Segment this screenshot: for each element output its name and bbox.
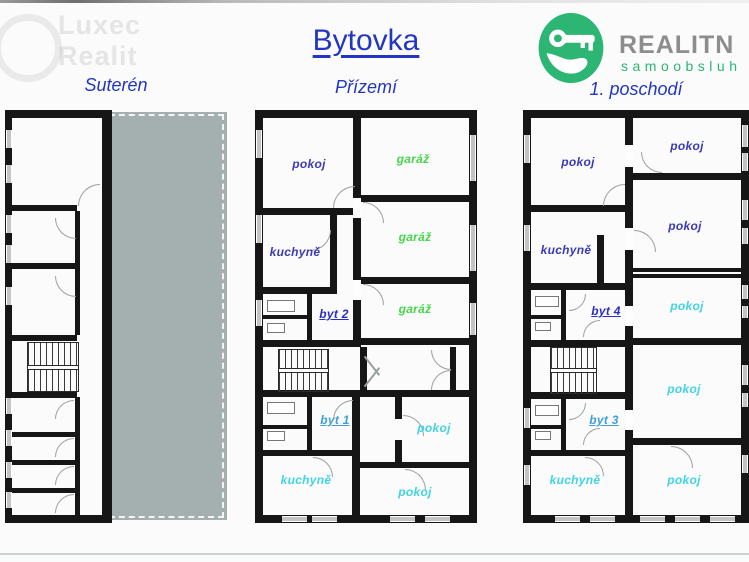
window [524, 135, 530, 163]
wall [531, 205, 625, 212]
window [742, 393, 748, 407]
door-arc [431, 370, 451, 390]
fixture [535, 405, 559, 416]
window [256, 130, 262, 158]
wall [263, 287, 337, 294]
wall [531, 450, 625, 456]
door-arc [583, 320, 600, 337]
wall [12, 488, 77, 493]
stair-landing [551, 368, 596, 373]
door-arc [671, 446, 693, 468]
room-label: kuchyně [270, 245, 321, 259]
wall [531, 425, 561, 429]
fixture [535, 296, 559, 307]
room-label: pokoj [398, 485, 432, 499]
door-arc [78, 184, 100, 206]
window [6, 245, 12, 263]
door-gap [625, 228, 633, 250]
room-label: byt 2 [319, 307, 349, 321]
door-arc [583, 428, 600, 445]
window [6, 462, 12, 478]
wall [307, 294, 312, 340]
wall [361, 195, 469, 202]
window [524, 465, 530, 485]
door-arc [603, 184, 625, 206]
window [590, 516, 615, 522]
window [425, 516, 450, 522]
door-arc [55, 276, 76, 297]
garage-door-opening [470, 225, 476, 271]
door-arc [55, 400, 74, 419]
room-label: pokoj [667, 473, 701, 487]
window [742, 365, 748, 385]
door-arc [55, 438, 74, 457]
wall [353, 118, 361, 347]
plan-suteren [5, 110, 227, 523]
garage-door-opening [470, 135, 476, 181]
window [742, 306, 748, 318]
wall [633, 268, 741, 272]
room-label: garáž [397, 152, 430, 166]
door-arc [431, 350, 451, 370]
door-gap [625, 410, 633, 430]
wall [361, 277, 469, 284]
room-label: pokoj [561, 155, 595, 169]
window [742, 125, 748, 147]
wall [12, 263, 77, 269]
wall [633, 338, 741, 345]
key-in-hand-icon [536, 10, 606, 86]
window [6, 398, 12, 414]
door-gap [353, 280, 361, 300]
logo-brand-text: REALITN [619, 31, 734, 60]
room-label: garáž [399, 230, 432, 244]
fixture [267, 402, 295, 414]
wall [263, 208, 353, 215]
door-arc [55, 494, 74, 513]
wall [531, 283, 625, 290]
fixture [267, 323, 285, 333]
window [6, 430, 12, 446]
floor-title-prizemi: Přízemí [255, 77, 477, 98]
window [6, 215, 12, 233]
door-arc [55, 466, 74, 485]
staircase [550, 347, 597, 394]
wall [263, 315, 307, 319]
stair-landing [279, 368, 328, 373]
wall [561, 399, 566, 455]
wall [12, 392, 77, 398]
wall [102, 110, 112, 523]
room-label: pokoj [670, 299, 704, 313]
wall [5, 515, 110, 523]
wall [255, 110, 477, 118]
top-edge-strip [0, 0, 749, 3]
window [742, 153, 748, 171]
door-gap [625, 145, 633, 167]
window [742, 285, 748, 299]
window [256, 300, 262, 326]
window [555, 516, 580, 522]
wall [395, 397, 402, 419]
room-label: byt 3 [589, 413, 619, 427]
wall [263, 450, 352, 456]
wall [263, 425, 307, 429]
stair-landing [28, 365, 78, 370]
window [742, 455, 748, 473]
window [675, 516, 700, 522]
room-label: kuchyně [541, 243, 592, 257]
door-arc [634, 230, 656, 252]
window [742, 200, 748, 220]
bottom-edge-strip [0, 553, 749, 555]
window [6, 492, 12, 508]
door-arc [333, 186, 355, 208]
door-arc [641, 152, 662, 173]
wall [75, 397, 80, 515]
room-label: byt 4 [591, 304, 621, 318]
door-arc [363, 284, 384, 305]
floorplan-sheet: Luxec Realit Bytovka Suterén Přízemí 1. … [0, 0, 749, 562]
room-label: kuchyně [550, 473, 601, 487]
window [6, 287, 12, 305]
wall [523, 110, 749, 118]
watermark-logo-icon [0, 14, 62, 82]
room-label: pokoj [417, 421, 451, 435]
garage-door-opening [470, 303, 476, 335]
door-arc [569, 403, 586, 420]
window [282, 516, 307, 522]
fixture [535, 431, 551, 440]
floor-title-suteren: Suterén [5, 75, 227, 96]
terrain-dashed-border [109, 114, 224, 518]
room-label: kuchyně [281, 473, 332, 487]
plan-prizemi: pokoj garáž garáž garáž kuchyně byt 2 by… [255, 110, 477, 523]
window [640, 516, 665, 522]
window [312, 516, 337, 522]
staircase [278, 349, 329, 392]
wall [633, 173, 741, 180]
wall [361, 338, 469, 345]
wall [263, 340, 353, 347]
wall [12, 335, 77, 341]
wall [531, 340, 625, 347]
wall [633, 274, 741, 278]
fixture [535, 322, 551, 331]
room-label: pokoj [292, 157, 326, 171]
wall [395, 440, 402, 462]
wall [12, 432, 77, 437]
door-arc [55, 218, 76, 239]
wall [561, 290, 566, 340]
door-arc [569, 294, 586, 311]
plan-poschodi: pokoj pokoj pokoj kuchyně byt 4 pokoj by… [523, 110, 749, 523]
wall [531, 315, 561, 319]
fixture [267, 431, 285, 441]
wall [360, 462, 469, 468]
window [390, 516, 415, 522]
wall [633, 438, 741, 445]
room-label: pokoj [670, 139, 704, 153]
room-label: byt 1 [320, 413, 350, 427]
window [256, 215, 262, 243]
window [710, 516, 735, 522]
room-label: pokoj [668, 219, 702, 233]
wall [12, 205, 77, 211]
logo-subtitle-text: samoobsluh [621, 58, 742, 74]
wall [5, 110, 110, 118]
window [6, 165, 12, 183]
fixture [267, 300, 295, 312]
wall [12, 460, 77, 465]
wall [597, 235, 604, 283]
window [524, 225, 530, 251]
room-label: pokoj [667, 382, 701, 396]
terrain-area [109, 112, 227, 520]
wall [352, 397, 360, 515]
watermark-text: Luxec Realit [58, 10, 141, 72]
window [6, 130, 12, 148]
window [742, 228, 748, 244]
staircase [27, 342, 79, 392]
door-arc [363, 202, 384, 223]
watermark-line1: Luxec [58, 10, 141, 41]
room-label: garáž [399, 302, 432, 316]
wall [330, 215, 337, 294]
window [524, 408, 530, 428]
watermark-line2: Realit [58, 41, 141, 72]
page-title: Bytovka [255, 24, 477, 58]
wall [307, 397, 312, 455]
wall [523, 110, 531, 523]
door-gap [625, 306, 633, 326]
